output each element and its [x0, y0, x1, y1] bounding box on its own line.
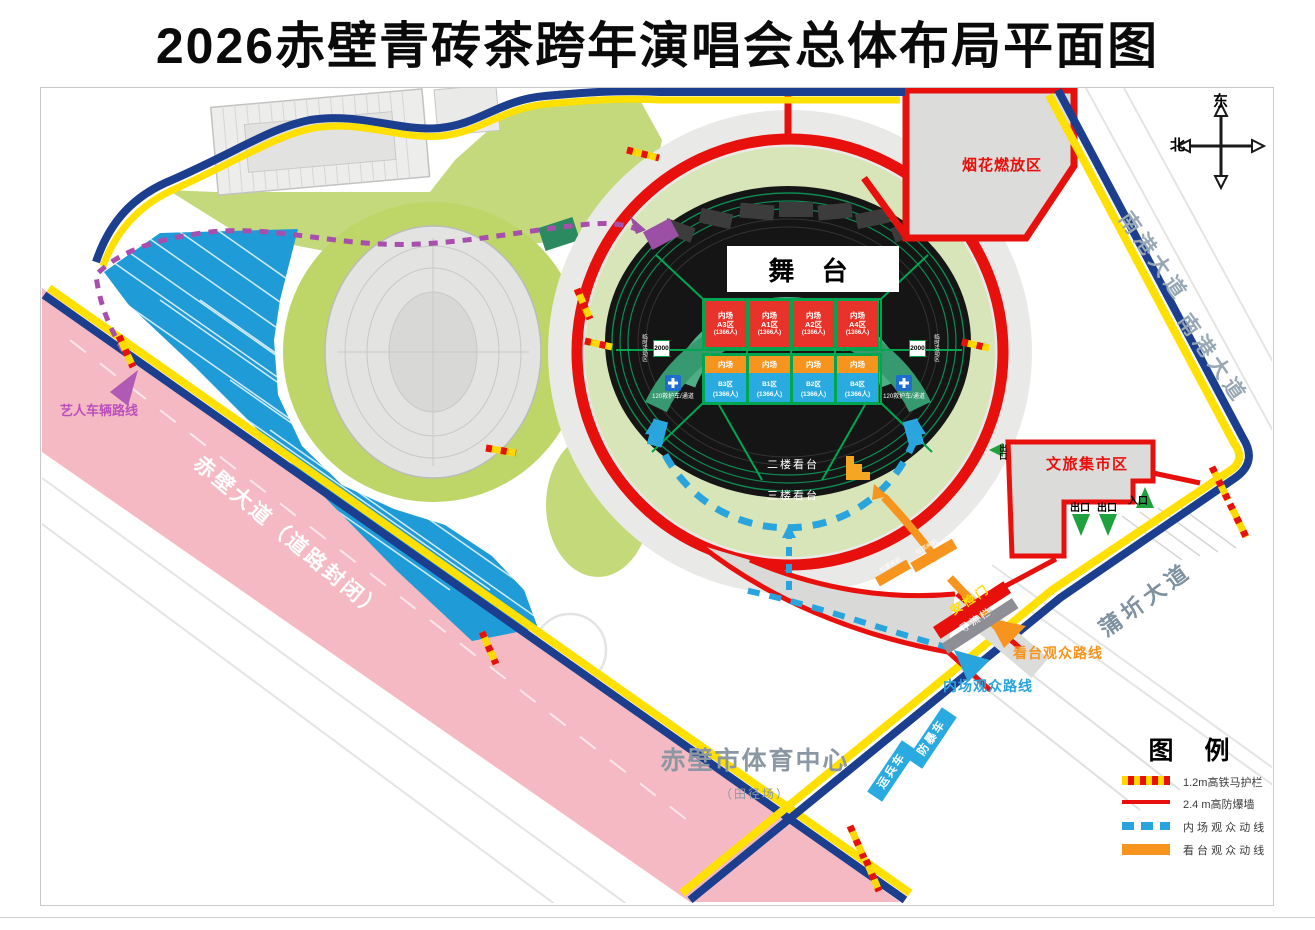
legend-label-infield-flow: 内 场 观 众 动 线 — [1183, 819, 1264, 835]
market-exit-b-label: 出口 — [1097, 503, 1117, 514]
stage-area: 舞 台 — [727, 246, 899, 292]
legend-swatch-wall — [1122, 800, 1170, 804]
stand-level2-label: 二楼看台 — [763, 459, 823, 471]
ambulance-label-left: 120救护车/通道 — [633, 394, 713, 401]
legend-label-barrier: 1.2m高铁马护栏 — [1183, 774, 1262, 790]
artist-route-label: 艺人车辆路线 — [60, 404, 138, 418]
market-zone-label: 文旅集市区 — [1046, 457, 1129, 474]
stand-route-label: 看台观众路线 — [1013, 646, 1103, 661]
market-exit-a-label: 出口 — [1070, 503, 1090, 514]
legend-label-stand-flow: 看 台 观 众 动 线 — [1183, 842, 1264, 858]
infield-route-label: 内场观众路线 — [943, 679, 1033, 694]
temp-zone-label-right: 临时活动区 — [933, 334, 939, 362]
seating-block-b2: 内场 B2区(1366人) — [792, 355, 835, 403]
gymnasium — [283, 202, 583, 502]
temp-zone-label-left: 临时活动区 — [641, 334, 647, 362]
temp-zone-count-left: 2000 — [653, 340, 670, 357]
legend-label-wall: 2.4 m高防爆墙 — [1183, 796, 1255, 812]
seating-block-b1: 内场 B1区(1366人) — [748, 355, 791, 403]
market-entry-label: 入口 — [1128, 496, 1148, 507]
seating-block-a4: 内场A4区(1366人) — [836, 300, 879, 348]
fireworks-zone-label: 烟花燃放区 — [962, 158, 1042, 175]
compass-icon — [1178, 104, 1264, 188]
market-exit-side-label: 出口 — [998, 444, 1007, 460]
site-plan: { "title": "2026赤壁青砖茶跨年演唱会总体布局平面图", "com… — [0, 0, 1315, 930]
sports-center-label: 赤壁市体育中心 — [660, 748, 850, 776]
legend-swatch-infield-flow — [1122, 822, 1170, 830]
seating-block-a1: 内场A1区(1366人) — [748, 300, 791, 348]
legend-title: 图 例 — [1120, 731, 1270, 767]
legend-swatch-barrier — [1122, 776, 1170, 785]
seating-block-a3: 内场A3区(1366人) — [704, 300, 747, 348]
track-field-label: （田径场） — [705, 788, 805, 801]
compass-north-label: 北 — [1170, 138, 1185, 155]
compass-east-label: 东 — [1213, 94, 1228, 111]
seating-block-a2: 内场A2区(1366人) — [792, 300, 835, 348]
legend-swatch-stand-flow — [1122, 844, 1170, 855]
stand-level3-label: 三楼看台 — [763, 490, 823, 502]
temp-zone-count-right: 2000 — [909, 340, 926, 357]
ambulance-label-right: 120救护车/通道 — [864, 394, 944, 401]
